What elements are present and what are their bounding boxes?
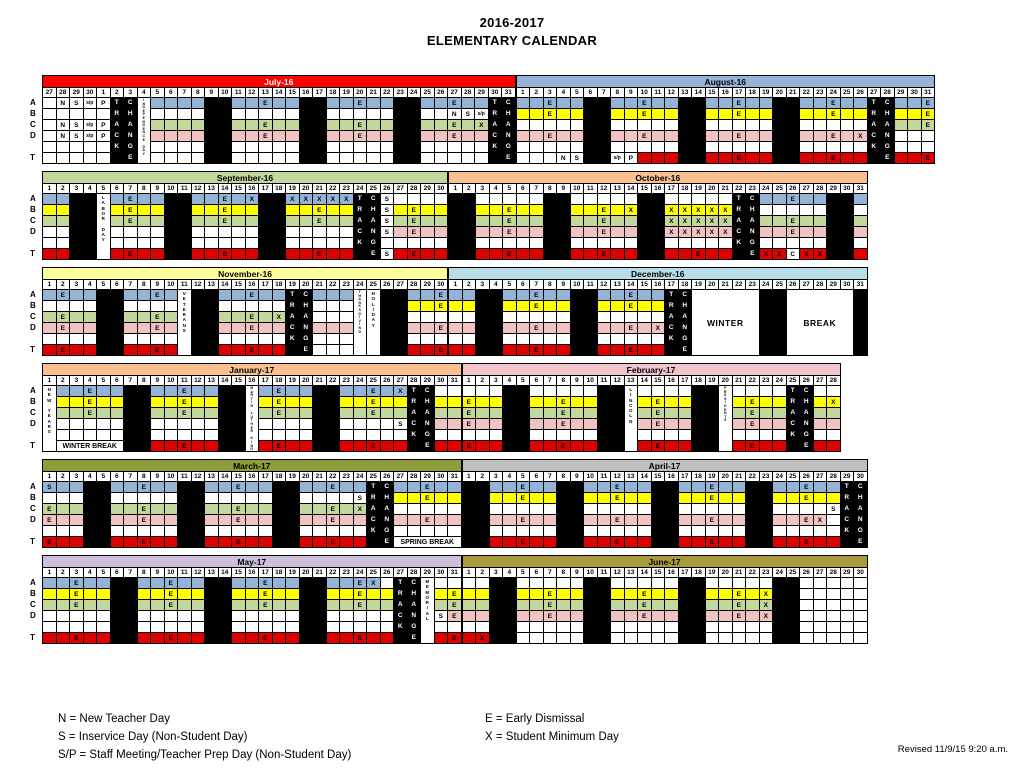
day-number-cell: 8 xyxy=(138,568,151,577)
day-number-cell: 28 xyxy=(814,184,827,193)
calendar-cell xyxy=(503,526,516,536)
legend-left: N = New Teacher Day S = Inservice Day (N… xyxy=(58,710,351,764)
calendar-cell xyxy=(327,312,340,322)
month-header: July-16 xyxy=(43,76,515,87)
calendar-cell xyxy=(327,408,340,418)
calendar-cell xyxy=(219,622,232,632)
calendar-cell xyxy=(760,142,773,152)
calendar-cell xyxy=(57,238,70,248)
calendar-cell xyxy=(463,482,476,492)
day-number-cell: 18 xyxy=(679,280,692,289)
calendar-cell xyxy=(598,578,611,588)
day-number-cell: 24 xyxy=(760,280,773,289)
cell-mark: E xyxy=(439,325,443,332)
calendar-cell xyxy=(381,301,394,311)
row-label: D xyxy=(30,419,42,430)
cell-mark: E xyxy=(155,292,159,299)
calendar-cell xyxy=(192,600,205,610)
day-number-cell: 4 xyxy=(503,472,516,481)
day-number-cell: 28 xyxy=(408,568,421,577)
calendar-cell xyxy=(584,622,597,632)
calendar-cell xyxy=(408,290,421,300)
day-number-cell: 14 xyxy=(219,184,232,193)
cell-mark: E xyxy=(61,347,65,354)
calendar-cell xyxy=(232,98,245,108)
day-number-cell: 25 xyxy=(421,88,434,97)
calendar-cell: s/p xyxy=(611,153,624,163)
calendar-cell xyxy=(192,98,205,108)
track-change-column: T R A C K xyxy=(286,290,299,355)
calendar-cell xyxy=(584,98,597,108)
calendar-cell xyxy=(246,120,259,130)
calendar-cell xyxy=(259,408,272,418)
calendar-cell xyxy=(367,633,380,643)
calendar-cell: X xyxy=(354,504,367,514)
calendar-cell xyxy=(841,205,854,215)
calendar-cell xyxy=(854,323,867,333)
calendar-cell xyxy=(246,622,259,632)
calendar-cell xyxy=(313,301,326,311)
calendar-cell xyxy=(84,301,97,311)
calendar-cell xyxy=(421,109,434,119)
day-number-cell: 2 xyxy=(463,280,476,289)
cell-mark: E xyxy=(602,218,606,225)
calendar-cell xyxy=(259,323,272,333)
calendar-cell xyxy=(625,515,638,525)
calendar-cell xyxy=(490,345,503,355)
calendar-cell xyxy=(421,504,434,514)
row-label-column: ABCDT xyxy=(30,75,42,164)
cell-mark: E xyxy=(250,292,254,299)
calendar-cell xyxy=(706,386,719,396)
calendar-cell xyxy=(246,537,259,547)
calendar-cell xyxy=(611,323,624,333)
day-number-cell: 29 xyxy=(475,88,488,97)
calendar-cell: X xyxy=(665,216,678,226)
calendar-cell xyxy=(313,227,326,237)
calendar-cell xyxy=(638,142,651,152)
calendar-cell xyxy=(854,345,867,355)
calendar-cell: E xyxy=(435,323,448,333)
calendar-cell xyxy=(151,430,164,440)
calendar-cell: E xyxy=(408,216,421,226)
calendar-cell xyxy=(854,216,867,226)
calendar-cell: E xyxy=(246,290,259,300)
calendar-cell xyxy=(476,515,489,525)
calendar-cell xyxy=(205,153,218,163)
day-number-cell: 18 xyxy=(692,568,705,577)
calendar-cell xyxy=(814,142,827,152)
calendar-cell xyxy=(70,216,83,226)
calendar-cell xyxy=(232,397,245,407)
cell-mark: E xyxy=(467,399,471,406)
calendar-cell xyxy=(854,622,867,632)
calendar-cell xyxy=(246,526,259,536)
day-number-cell: 28 xyxy=(408,184,421,193)
calendar-cell: E xyxy=(165,633,178,643)
calendar-cell xyxy=(57,205,70,215)
cell-mark: E xyxy=(750,443,754,450)
calendar-cell xyxy=(625,633,638,643)
calendar-cell xyxy=(394,493,407,503)
calendar-cell xyxy=(800,504,813,514)
calendar-cell xyxy=(679,120,692,130)
calendar-cell xyxy=(571,109,584,119)
calendar-cell xyxy=(584,482,597,492)
calendar-cell xyxy=(313,120,326,130)
calendar-cell xyxy=(124,526,137,536)
legend-minimum-day: X = Student Minimum Day xyxy=(485,728,619,746)
calendar-cell xyxy=(178,194,191,204)
day-number-cell: 17 xyxy=(259,472,272,481)
cell-mark: E xyxy=(61,292,65,299)
calendar-cell xyxy=(463,537,476,547)
calendar-cell xyxy=(192,408,205,418)
calendar-cell xyxy=(557,600,570,610)
day-number-cell: 9 xyxy=(557,184,570,193)
calendar-cell xyxy=(70,515,83,525)
day-number-cell: 28 xyxy=(881,88,894,97)
calendar-cell xyxy=(165,194,178,204)
calendar-cell xyxy=(760,290,773,300)
day-number-cell: 16 xyxy=(300,88,313,97)
calendar-cell xyxy=(733,419,746,429)
day-number-cell: 2 xyxy=(476,568,489,577)
calendar-cell xyxy=(84,611,97,621)
calendar-cell xyxy=(111,323,124,333)
calendar-cell: E xyxy=(544,600,557,610)
day-number-cell: 29 xyxy=(70,88,83,97)
holiday-column: H O L I D A Y xyxy=(367,290,380,355)
calendar-cell: E xyxy=(638,131,651,141)
cell-mark: E xyxy=(236,506,240,513)
calendar-cell xyxy=(421,120,434,130)
cell-mark: X xyxy=(764,591,768,598)
day-number-cell: 5 xyxy=(97,280,110,289)
calendar-cell xyxy=(719,482,732,492)
calendar-cell xyxy=(611,430,624,440)
holiday-column: M A R T I N L U T H E R K I N G xyxy=(246,386,259,451)
calendar-cell: X xyxy=(475,120,488,130)
day-number-cell: 21 xyxy=(313,280,326,289)
calendar-cell xyxy=(367,419,380,429)
calendar-cell xyxy=(557,120,570,130)
cell-mark: X xyxy=(669,207,673,214)
calendar-cell xyxy=(652,386,665,396)
calendar-cell xyxy=(313,386,326,396)
calendar-cell xyxy=(219,408,232,418)
cell-mark: S xyxy=(439,613,443,620)
calendar-cell xyxy=(124,386,137,396)
calendar-cell xyxy=(300,633,313,643)
track-change-column: C H A N G E xyxy=(300,290,313,355)
calendar-cell xyxy=(300,482,313,492)
calendar-cell xyxy=(490,578,503,588)
calendar-cell xyxy=(97,334,110,344)
calendar-cell xyxy=(84,345,97,355)
calendar-cell xyxy=(557,238,570,248)
calendar-cell xyxy=(584,633,597,643)
calendar-cell xyxy=(773,537,786,547)
cell-mark: E xyxy=(548,613,552,620)
calendar-cell xyxy=(692,430,705,440)
calendar-cell xyxy=(557,526,570,536)
calendar-cell: X xyxy=(800,249,813,259)
calendar-cell xyxy=(205,109,218,119)
day-number-cell: 1 xyxy=(43,472,56,481)
calendar-cell xyxy=(286,397,299,407)
calendar-cell xyxy=(665,578,678,588)
calendar-cell xyxy=(205,216,218,226)
calendar-cell xyxy=(300,408,313,418)
day-number-cell: 29 xyxy=(841,568,854,577)
calendar-cell xyxy=(381,323,394,333)
calendar-cell: S xyxy=(70,120,83,130)
calendar-cell xyxy=(70,109,83,119)
calendar-cell xyxy=(787,526,800,536)
day-number-cell: 18 xyxy=(746,88,759,97)
calendar-cell xyxy=(421,131,434,141)
calendar-cell xyxy=(178,419,191,429)
calendar-cell xyxy=(544,504,557,514)
calendar-cell xyxy=(476,526,489,536)
calendar-cell xyxy=(544,622,557,632)
day-number-cell: 17 xyxy=(259,184,272,193)
calendar-cell xyxy=(517,589,530,599)
calendar-cell xyxy=(408,131,421,141)
calendar-cell xyxy=(70,238,83,248)
row-label: B xyxy=(30,397,42,408)
calendar-cell xyxy=(97,386,110,396)
calendar-cell xyxy=(800,153,813,163)
cell-mark: E xyxy=(467,410,471,417)
calendar-cell xyxy=(638,312,651,322)
calendar-cell xyxy=(435,589,448,599)
calendar-cell: E xyxy=(733,600,746,610)
calendar-cell xyxy=(517,290,530,300)
cell-mark: S xyxy=(385,229,389,236)
calendar-cell xyxy=(827,633,840,643)
calendar-cell xyxy=(273,430,286,440)
calendar-cell xyxy=(43,323,56,333)
day-number-cell: 13 xyxy=(259,88,272,97)
calendar-cell xyxy=(530,109,543,119)
calendar-cell xyxy=(246,334,259,344)
calendar-cell xyxy=(367,142,380,152)
calendar-cell xyxy=(706,120,719,130)
calendar-cell xyxy=(692,611,705,621)
calendar-cell xyxy=(84,526,97,536)
month-header: June-17 xyxy=(463,556,867,567)
calendar-cell xyxy=(706,600,719,610)
day-number-cell: 2 xyxy=(111,88,124,97)
calendar-cell xyxy=(908,142,921,152)
day-number-cell: 31 xyxy=(448,376,461,385)
calendar-cell xyxy=(692,142,705,152)
day-number-cell: 11 xyxy=(584,184,597,193)
calendar-cell xyxy=(435,397,448,407)
calendar-cell: E xyxy=(448,98,461,108)
calendar-cell xyxy=(340,205,353,215)
day-number-cell: 14 xyxy=(273,88,286,97)
calendar-cell xyxy=(773,334,786,344)
cell-mark: E xyxy=(250,325,254,332)
calendar-cell: E xyxy=(448,611,461,621)
calendar-cell xyxy=(652,109,665,119)
calendar-cell xyxy=(760,131,773,141)
calendar-cell xyxy=(205,600,218,610)
calendar-cell xyxy=(259,441,272,451)
calendar-cell xyxy=(652,216,665,226)
calendar-cell: E xyxy=(530,301,543,311)
day-number-cell: 25 xyxy=(367,184,380,193)
cell-mark: E xyxy=(561,443,565,450)
calendar-cell xyxy=(57,334,70,344)
calendar-cell xyxy=(773,109,786,119)
calendar-cell xyxy=(178,504,191,514)
calendar-cell xyxy=(773,131,786,141)
calendar-cell xyxy=(219,120,232,130)
calendar-cell xyxy=(151,120,164,130)
calendar-cell xyxy=(354,622,367,632)
day-number-cell: 7 xyxy=(124,184,137,193)
calendar-cell: N xyxy=(557,153,570,163)
calendar-cell xyxy=(760,153,773,163)
calendar-cell xyxy=(760,323,773,333)
calendar-cell xyxy=(503,441,516,451)
calendar-cell: X xyxy=(814,249,827,259)
calendar-cell xyxy=(232,622,245,632)
calendar-cell xyxy=(273,482,286,492)
cell-mark: X xyxy=(764,251,768,258)
calendar-cell xyxy=(719,611,732,621)
calendar-cell: E xyxy=(638,98,651,108)
calendar-cell: E xyxy=(652,419,665,429)
cell-mark: E xyxy=(791,196,795,203)
calendar-cell: E xyxy=(463,419,476,429)
day-number-cell: 7 xyxy=(544,472,557,481)
cell-mark: N xyxy=(60,100,65,107)
calendar-cell xyxy=(219,537,232,547)
calendar-cell xyxy=(219,290,232,300)
calendar-cell xyxy=(490,301,503,311)
day-number-cell: 26 xyxy=(435,88,448,97)
calendar-cell xyxy=(611,419,624,429)
calendar-cell xyxy=(354,386,367,396)
calendar-cell xyxy=(746,142,759,152)
calendar-cell xyxy=(165,131,178,141)
calendar-cell xyxy=(165,301,178,311)
calendar-cell xyxy=(205,515,218,525)
calendar-cell xyxy=(313,515,326,525)
calendar-cell xyxy=(598,301,611,311)
day-number-cell: 7 xyxy=(544,568,557,577)
day-number-cell: 11 xyxy=(584,280,597,289)
calendar-cell xyxy=(638,249,651,259)
calendar-cell: E xyxy=(259,589,272,599)
cell-mark: E xyxy=(317,218,321,225)
calendar-cell xyxy=(286,153,299,163)
day-number-cell: 31 xyxy=(854,184,867,193)
calendar-cell xyxy=(313,408,326,418)
calendar-cell xyxy=(517,227,530,237)
calendar-cell xyxy=(340,493,353,503)
calendar-cell xyxy=(192,430,205,440)
calendar-cell xyxy=(205,578,218,588)
calendar-cell xyxy=(165,249,178,259)
calendar-cell xyxy=(408,194,421,204)
calendar-cell xyxy=(814,430,827,440)
day-number-cell: 14 xyxy=(638,472,651,481)
calendar-cell xyxy=(192,142,205,152)
calendar-cell: E xyxy=(448,633,461,643)
cell-mark: s/p xyxy=(86,100,93,106)
cell-mark: X xyxy=(764,602,768,609)
calendar-cell xyxy=(611,600,624,610)
day-number-cell: 24 xyxy=(760,184,773,193)
calendar-cell xyxy=(300,386,313,396)
cell-mark: E xyxy=(277,410,281,417)
cell-mark: X xyxy=(777,251,781,258)
calendar-cell xyxy=(503,290,516,300)
calendar-cell xyxy=(300,441,313,451)
calendar-cell xyxy=(192,227,205,237)
calendar-cell xyxy=(219,345,232,355)
calendar-cell xyxy=(286,386,299,396)
month-block: September-161234567891011121314151617181… xyxy=(42,171,448,260)
calendar-cell: E xyxy=(463,397,476,407)
calendar-cell xyxy=(84,493,97,503)
calendar-cell xyxy=(192,482,205,492)
day-number-cell: 14 xyxy=(219,376,232,385)
calendar-cell xyxy=(340,589,353,599)
calendar-cell: S xyxy=(435,611,448,621)
calendar-cell xyxy=(354,153,367,163)
calendar-cell xyxy=(584,537,597,547)
calendar-cell: E xyxy=(530,345,543,355)
cell-mark: S xyxy=(385,218,389,225)
calendar-cell xyxy=(286,120,299,130)
calendar-cell xyxy=(611,408,624,418)
calendar-cell xyxy=(841,98,854,108)
calendar-cell xyxy=(571,537,584,547)
calendar-cell xyxy=(205,526,218,536)
calendar-cell xyxy=(679,589,692,599)
calendar-cell xyxy=(719,120,732,130)
calendar-cell xyxy=(340,216,353,226)
calendar-cell xyxy=(584,345,597,355)
calendar-cell xyxy=(300,216,313,226)
calendar-cell xyxy=(490,419,503,429)
calendar-cell xyxy=(259,386,272,396)
calendar-cell xyxy=(111,578,124,588)
calendar-cell xyxy=(205,301,218,311)
month-block: January-17123456789101112131415161718192… xyxy=(42,363,462,452)
calendar-cell xyxy=(706,622,719,632)
day-number-cell: 16 xyxy=(719,88,732,97)
cell-mark: E xyxy=(47,506,51,513)
calendar-cell xyxy=(827,441,840,451)
calendar-cell: E xyxy=(219,216,232,226)
day-number-cell: 25 xyxy=(367,280,380,289)
holiday-column: V E T E R A N S xyxy=(178,290,191,355)
calendar-cell xyxy=(584,301,597,311)
day-number-cell: 22 xyxy=(327,568,340,577)
calendar-cell xyxy=(598,482,611,492)
calendar-cell xyxy=(584,205,597,215)
calendar-cell xyxy=(652,194,665,204)
calendar-cell xyxy=(503,238,516,248)
